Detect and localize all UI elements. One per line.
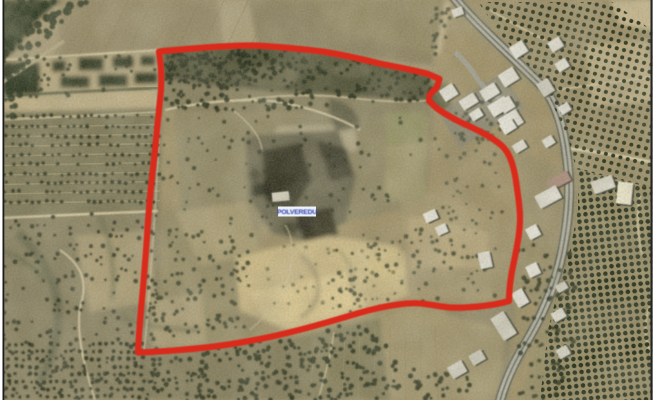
svg-text:POLVEREDU: POLVEREDU	[277, 209, 317, 216]
